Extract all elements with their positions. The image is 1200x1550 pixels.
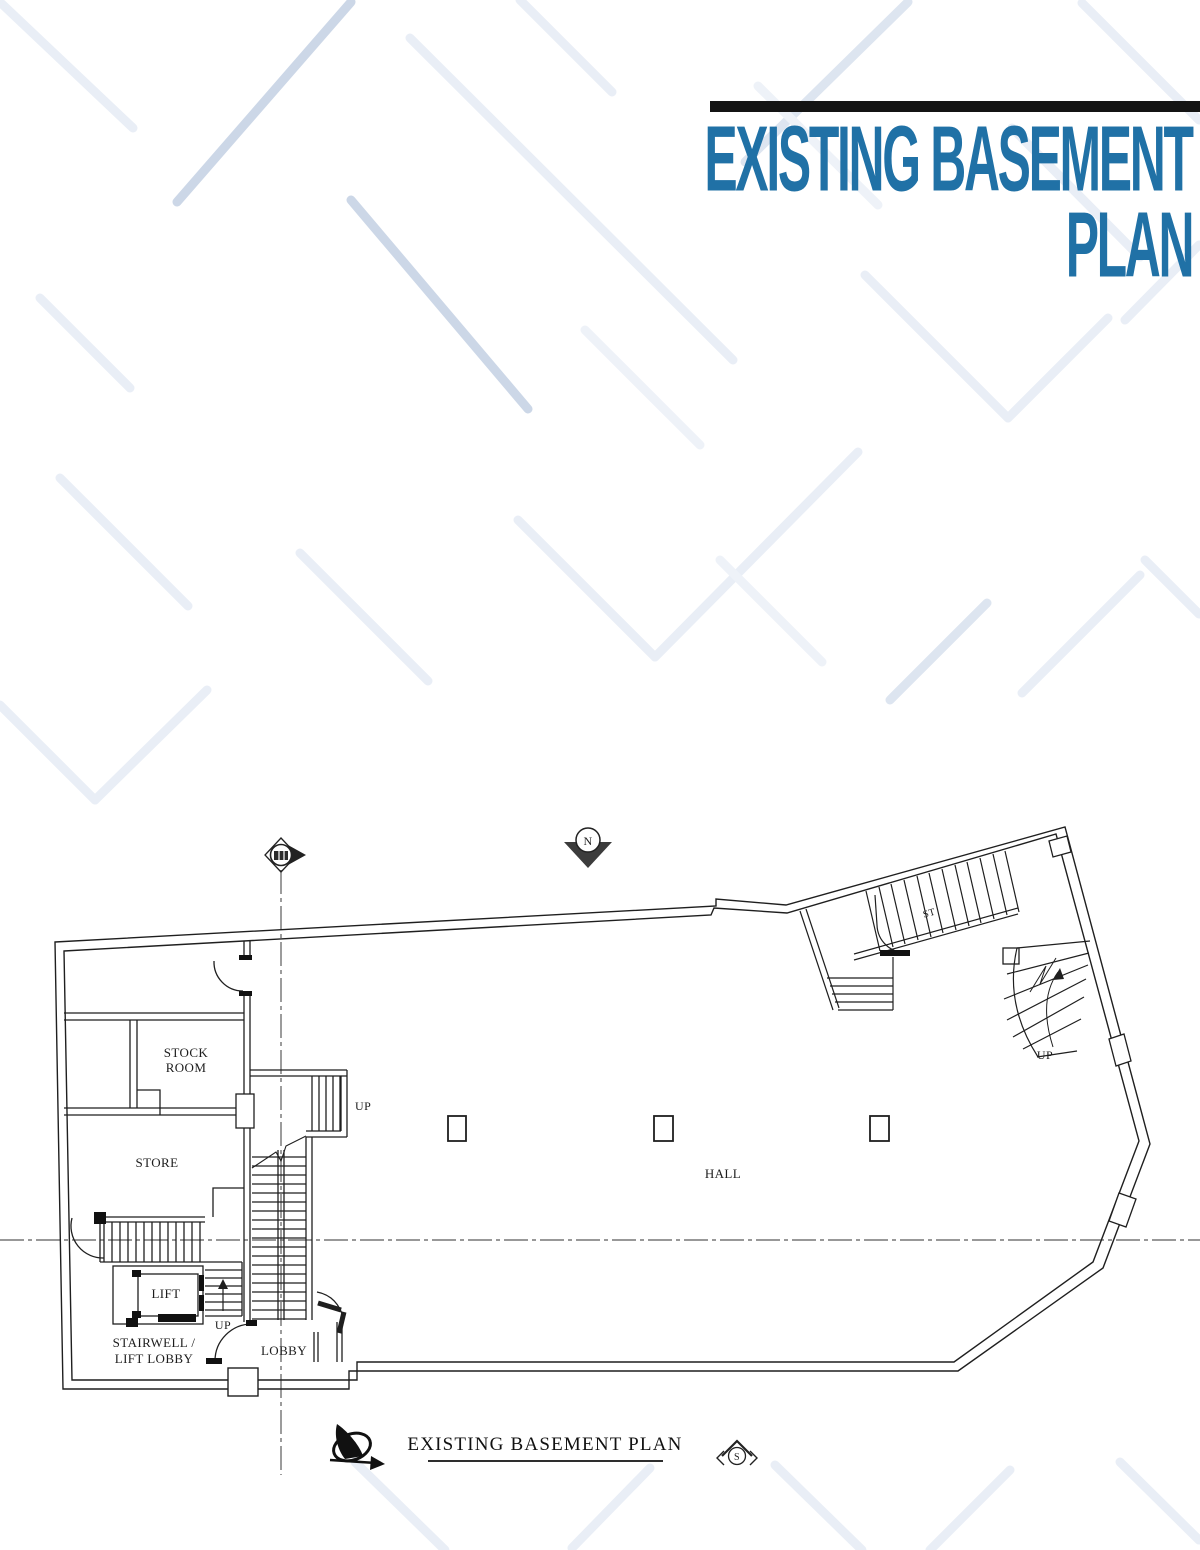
wall-pillar-lobby: [228, 1368, 258, 1396]
lobby-entry: [314, 1292, 344, 1362]
lift-door-marks: [94, 1212, 204, 1327]
topleft-rooms-walls: [64, 941, 250, 1217]
south-letter: S: [734, 1452, 740, 1463]
label-stock-room-2: ROOM: [166, 1060, 207, 1075]
door-arc-stairwell: [71, 1218, 104, 1258]
up-arrowhead-lift-stair: [218, 1279, 228, 1289]
room-labels: STOCK ROOM STORE LIFT HALL LOBBY STAIRWE…: [113, 907, 1053, 1366]
plan-caption: EXISTING BASEMENT PLAN: [407, 1434, 682, 1461]
compass-icon: [330, 1424, 385, 1470]
floor-plan-drawing: N STOCK ROOM STORE LIFT HALL LOBBY STAIR…: [0, 0, 1200, 1550]
shaft-door-jambs: [206, 1320, 257, 1364]
hall-column-3: [870, 1116, 889, 1141]
label-up-lift: UP: [215, 1318, 231, 1332]
label-stock-room-1: STOCK: [164, 1045, 209, 1060]
lift-stairwell-area: [71, 1217, 242, 1324]
label-stairwell-2: LIFT LOBBY: [115, 1351, 194, 1366]
page: { "header": { "title_line1": "EXISTING B…: [0, 0, 1200, 1550]
topright-door-leaf: [880, 950, 910, 956]
north-letter: N: [583, 834, 592, 848]
north-arrow-icon: N: [564, 828, 612, 868]
topleft-door-jambs: [239, 955, 252, 996]
hall-columns: [448, 1116, 889, 1141]
label-stairwell-1: STAIRWELL /: [113, 1335, 196, 1350]
door-arc-top-room: [214, 961, 243, 991]
door-arc-topright-stair: [877, 925, 907, 953]
winder-arrowhead: [1053, 968, 1064, 980]
label-up-center: UP: [355, 1099, 371, 1113]
caption-text: EXISTING BASEMENT PLAN: [407, 1434, 682, 1455]
label-up-winder: UP: [1037, 1048, 1053, 1062]
topright-staircase: [800, 851, 1019, 1010]
section-marker-icon: S: [717, 1441, 757, 1465]
grid-bubble-icon: [265, 838, 306, 872]
label-hall: HALL: [705, 1166, 741, 1181]
centerlines: [0, 870, 1200, 1475]
right-wall-pillars: [1049, 836, 1136, 1227]
label-lobby: LOBBY: [261, 1343, 307, 1358]
hall-column-2: [654, 1116, 673, 1141]
wall-pillar-stair: [236, 1094, 254, 1128]
entry-door-leaf-2: [339, 1312, 344, 1333]
label-store: STORE: [136, 1155, 179, 1170]
label-stair-st: ST: [922, 907, 937, 921]
hall-column-1: [448, 1116, 466, 1141]
label-lift: LIFT: [151, 1286, 180, 1301]
